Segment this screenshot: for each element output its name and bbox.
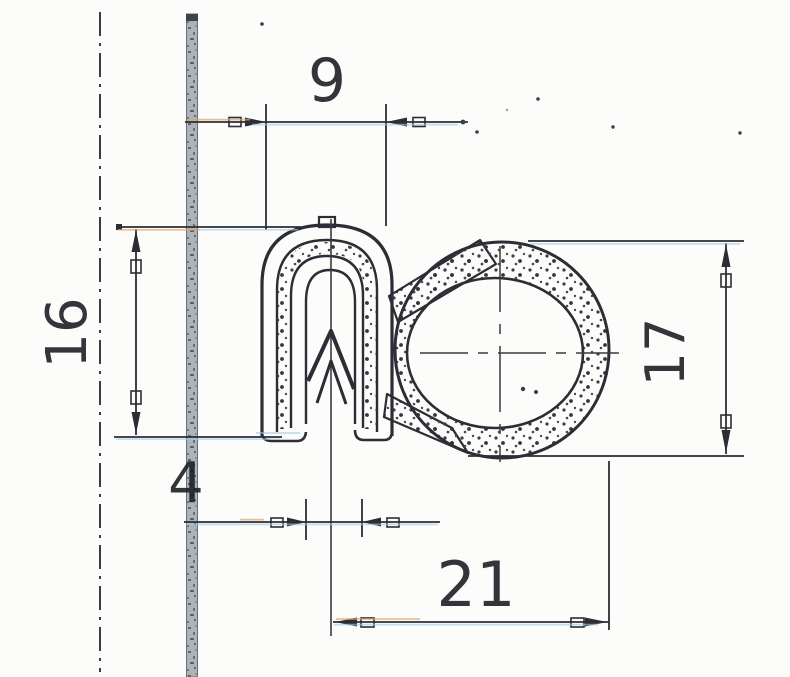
dim4-label: 4 [168, 451, 204, 516]
bulb-dot-1 [521, 387, 525, 391]
dim17-arrow-up [722, 244, 731, 267]
dim9-label: 9 [308, 46, 346, 116]
dim17-label: 17 [634, 318, 697, 387]
scan-speck [611, 125, 614, 128]
dim-clamp-width: 9 [185, 46, 468, 230]
flange-bar-top-cap [186, 14, 198, 21]
flange-bar-group [186, 14, 198, 677]
dim17-arrow-down [722, 430, 731, 453]
dim16-arrow-up [132, 230, 141, 252]
dim16-arrow-down [132, 412, 141, 434]
bulb-group [384, 240, 619, 462]
dim9-line-end-blob [461, 120, 466, 125]
scan-speck [738, 131, 741, 134]
clamp-right-foot [355, 430, 392, 440]
scanned-technical-drawing: 9 16 17 21 [0, 0, 790, 677]
seal-cross-section-svg: 9 16 17 21 [0, 0, 790, 677]
dim21-label: 21 [437, 548, 516, 621]
clamp-profile-group [262, 217, 392, 636]
dim16-label: 16 [35, 297, 100, 368]
scan-speck [475, 130, 479, 134]
dim-grip-gap: 4 [168, 451, 440, 540]
scan-speck [260, 22, 264, 26]
scan-speck [536, 97, 540, 101]
dim-overall-width: 21 [333, 461, 609, 630]
flange-bar [187, 14, 198, 677]
bulb-dot-2 [534, 390, 538, 394]
scan-speck [506, 109, 508, 111]
